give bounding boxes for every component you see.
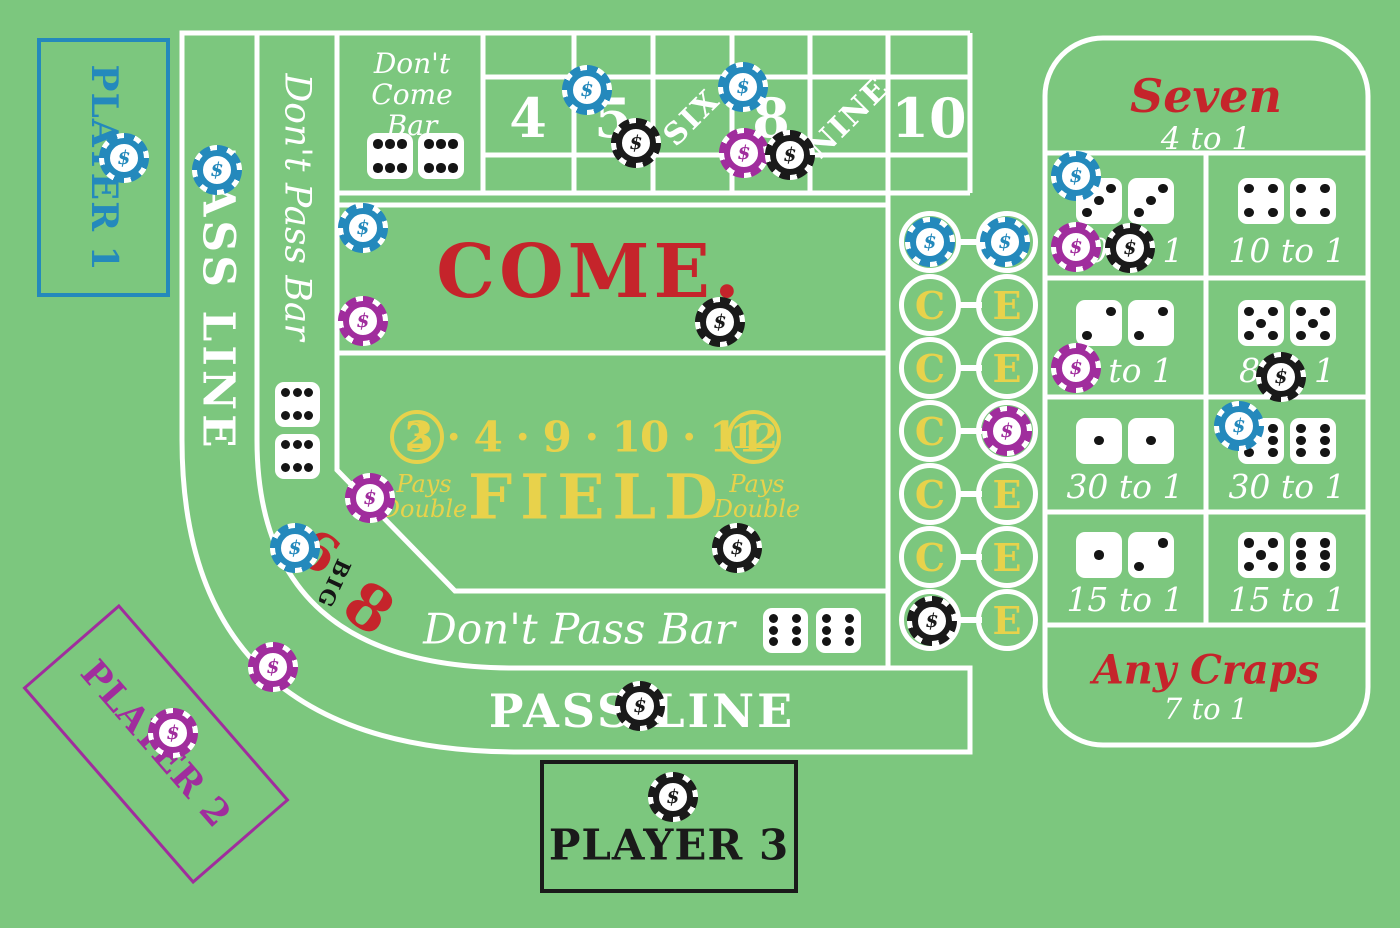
die-pip (1134, 562, 1143, 571)
casino-chip-black[interactable]: $ (611, 118, 661, 168)
die-pip (293, 463, 302, 472)
die-pip (1244, 538, 1253, 547)
die-pip (1134, 331, 1143, 340)
die-pip (1082, 208, 1091, 217)
dollar-symbol: $ (916, 605, 948, 637)
any-craps-circle[interactable]: C (899, 274, 961, 336)
die-pip (1296, 424, 1305, 433)
die-pip (1268, 184, 1277, 193)
die-pip (1158, 307, 1167, 316)
pays-double-right: PaysDouble (714, 472, 800, 522)
any-craps-title[interactable]: Any Craps (1093, 647, 1320, 694)
die-pip (373, 139, 382, 148)
dollar-symbol: $ (914, 226, 946, 258)
die-pip (1320, 184, 1329, 193)
casino-chip-black[interactable]: $ (1105, 223, 1155, 273)
die-pip (1244, 307, 1253, 316)
die-pip (304, 440, 313, 449)
die-pip (1268, 448, 1277, 457)
dollar-symbol: $ (1060, 160, 1092, 192)
die-pip (792, 637, 801, 646)
die-pip (448, 139, 457, 148)
die-pip (1146, 196, 1155, 205)
casino-chip-black[interactable]: $ (1256, 352, 1306, 402)
die-pip (397, 139, 406, 148)
dollar-symbol: $ (1265, 361, 1297, 393)
casino-chip-black[interactable]: $ (765, 130, 815, 180)
die-pip (1296, 331, 1305, 340)
die-pip (1158, 184, 1167, 193)
eleven-circle[interactable]: E (976, 526, 1038, 588)
die-pip (304, 463, 313, 472)
eleven-circle-label: E (993, 598, 1022, 643)
die-pip (1158, 538, 1167, 547)
field-12-label: 12 (730, 417, 777, 457)
die-pip (293, 440, 302, 449)
casino-chip-black[interactable]: $ (615, 681, 665, 731)
eleven-circle[interactable]: E (976, 589, 1038, 651)
die-pip (1146, 436, 1155, 445)
come-area[interactable]: COME. (436, 229, 743, 315)
die-pip (1256, 319, 1265, 328)
seven-bet-odds: 4 to 1 (1161, 121, 1251, 157)
casino-chip-magenta[interactable]: $ (345, 473, 395, 523)
casino-chip-black[interactable]: $ (695, 297, 745, 347)
dollar-symbol: $ (1223, 410, 1255, 442)
die-pip (769, 637, 778, 646)
die-pip (1244, 184, 1253, 193)
casino-chip-black[interactable]: $ (907, 596, 957, 646)
casino-chip-blue[interactable]: $ (905, 217, 955, 267)
printed-die-dont-pass-rail (275, 434, 320, 479)
dollar-symbol: $ (989, 226, 1021, 258)
die-pip (1268, 307, 1277, 316)
die-pip (1106, 307, 1115, 316)
die-pip (1256, 550, 1265, 559)
seven-bet-title[interactable]: Seven (1130, 69, 1282, 123)
die-pip (1268, 436, 1277, 445)
die-pip (1268, 208, 1277, 217)
prop-odds-label[interactable]: 30 to 1 (1207, 467, 1367, 506)
casino-chip-magenta[interactable]: $ (248, 642, 298, 692)
printed-die-prop (1128, 300, 1174, 346)
die-pip (1134, 208, 1143, 217)
dollar-symbol: $ (774, 139, 806, 171)
dont-pass-bar-bottom-label[interactable]: Don't Pass Bar (423, 605, 735, 654)
eleven-circle[interactable]: E (976, 337, 1038, 399)
die-pip (1296, 562, 1305, 571)
casino-chip-blue[interactable]: $ (562, 65, 612, 115)
die-pip (769, 614, 778, 623)
dollar-symbol: $ (347, 212, 379, 244)
any-craps-circle-label: C (915, 409, 945, 454)
casino-chip-black[interactable]: $ (712, 523, 762, 573)
die-pip (304, 411, 313, 420)
die-pip (1320, 208, 1329, 217)
die-pip (1320, 331, 1329, 340)
craps-table: PASS LINE Don't Pass Bar Don't Come Bar … (0, 0, 1400, 928)
eleven-circle[interactable]: E (976, 274, 1038, 336)
printed-die-dont-come-bar (367, 133, 413, 179)
prop-odds-label[interactable]: 30 to 1 (1045, 467, 1205, 506)
printed-die-prop (1238, 178, 1284, 224)
dollar-symbol: $ (620, 127, 652, 159)
die-pip (1094, 196, 1103, 205)
eleven-circle-label: E (993, 535, 1022, 580)
dollar-symbol: $ (657, 781, 689, 813)
dollar-symbol: $ (571, 74, 603, 106)
die-pip (281, 440, 290, 449)
dollar-symbol: $ (354, 482, 386, 514)
field-numbers[interactable]: 3 · 4 · 9 · 10 · 11 (404, 413, 765, 462)
field-area[interactable]: FIELD (468, 461, 726, 534)
die-pip (1320, 538, 1329, 547)
printed-die-prop (1290, 418, 1336, 464)
die-pip (293, 411, 302, 420)
casino-chip-blue[interactable]: $ (980, 217, 1030, 267)
die-pip (1082, 331, 1091, 340)
die-pip (769, 626, 778, 635)
dollar-symbol: $ (157, 717, 189, 749)
printed-die-prop (1290, 178, 1336, 224)
die-pip (1320, 550, 1329, 559)
die-pip (293, 388, 302, 397)
printed-die-dont-pass-rail (275, 382, 320, 427)
any-craps-circle-label: C (915, 283, 945, 328)
die-pip (1296, 448, 1305, 457)
die-pip (1296, 550, 1305, 559)
die-pip (1320, 307, 1329, 316)
die-pip (1308, 319, 1317, 328)
printed-die-prop (1076, 532, 1122, 578)
die-pip (1094, 550, 1103, 559)
casino-chip-blue[interactable]: $ (718, 62, 768, 112)
printed-die-dont-pass-bar-bottom (816, 608, 861, 653)
die-pip (281, 388, 290, 397)
casino-chip-magenta[interactable]: $ (719, 128, 769, 178)
die-pip (385, 163, 394, 172)
eleven-circle[interactable]: E (976, 463, 1038, 525)
die-pip (1094, 436, 1103, 445)
casino-chip-blue[interactable]: $ (99, 133, 149, 183)
dollar-symbol: $ (704, 306, 736, 338)
dollar-symbol: $ (728, 137, 760, 169)
printed-die-prop (1076, 418, 1122, 464)
die-pip (1244, 208, 1253, 217)
eleven-circle-label: E (993, 472, 1022, 517)
die-pip (1244, 331, 1253, 340)
printed-die-prop (1128, 418, 1174, 464)
die-pip (1268, 562, 1277, 571)
any-craps-circle[interactable]: C (899, 463, 961, 525)
casino-chip-blue[interactable]: $ (338, 203, 388, 253)
dollar-symbol: $ (1114, 232, 1146, 264)
printed-die-prop (1128, 532, 1174, 578)
dollar-symbol: $ (727, 71, 759, 103)
die-pip (1296, 208, 1305, 217)
any-craps-circle[interactable]: C (899, 400, 961, 462)
printed-die-prop (1290, 532, 1336, 578)
any-craps-circle-label: C (915, 535, 945, 580)
die-pip (436, 139, 445, 148)
die-pip (1320, 562, 1329, 571)
point-box-4[interactable]: 4 (509, 86, 547, 150)
dollar-symbol: $ (721, 532, 753, 564)
die-pip (1296, 436, 1305, 445)
printed-die-prop (1076, 300, 1122, 346)
dont-pass-rail-label[interactable]: Don't Pass Bar (277, 73, 318, 340)
point-box-10[interactable]: 10 (891, 86, 966, 150)
die-pip (281, 411, 290, 420)
die-pip (792, 626, 801, 635)
printed-die-dont-pass-bar-bottom (763, 608, 808, 653)
dollar-symbol: $ (108, 142, 140, 174)
die-pip (845, 626, 854, 635)
printed-die-prop (1238, 532, 1284, 578)
any-craps-circle-label: C (915, 472, 945, 517)
dollar-symbol: $ (1060, 231, 1092, 263)
die-pip (397, 163, 406, 172)
dollar-symbol: $ (624, 690, 656, 722)
casino-chip-magenta[interactable]: $ (148, 708, 198, 758)
casino-chip-magenta[interactable]: $ (982, 406, 1032, 456)
any-craps-circle[interactable]: C (899, 526, 961, 588)
die-pip (822, 614, 831, 623)
dollar-symbol: $ (991, 415, 1023, 447)
die-pip (373, 163, 382, 172)
prop-odds-label[interactable]: 10 to 1 (1207, 231, 1367, 270)
dollar-symbol: $ (347, 305, 379, 337)
any-craps-circle[interactable]: C (899, 337, 961, 399)
any-craps-circle-label: C (915, 346, 945, 391)
die-pip (424, 163, 433, 172)
die-pip (1106, 184, 1115, 193)
player3-label: PLAYER 3 (549, 821, 789, 870)
dollar-symbol: $ (257, 651, 289, 683)
die-pip (1320, 448, 1329, 457)
eleven-circle-label: E (993, 283, 1022, 328)
casino-chip-magenta[interactable]: $ (1051, 222, 1101, 272)
die-pip (304, 388, 313, 397)
casino-chip-blue[interactable]: $ (1051, 151, 1101, 201)
die-pip (1296, 184, 1305, 193)
die-pip (1296, 307, 1305, 316)
eleven-circle-label: E (993, 346, 1022, 391)
die-pip (822, 626, 831, 635)
die-pip (385, 139, 394, 148)
casino-chip-black[interactable]: $ (648, 772, 698, 822)
dollar-symbol: $ (279, 532, 311, 564)
casino-chip-magenta[interactable]: $ (1051, 343, 1101, 393)
prop-odds-label[interactable]: 15 to 1 (1207, 580, 1367, 619)
die-pip (1244, 562, 1253, 571)
die-pip (1268, 331, 1277, 340)
casino-chip-blue[interactable]: $ (192, 145, 242, 195)
die-pip (424, 139, 433, 148)
die-pip (281, 463, 290, 472)
casino-chip-blue[interactable]: $ (270, 523, 320, 573)
printed-die-prop (1238, 300, 1284, 346)
die-pip (845, 637, 854, 646)
die-pip (845, 614, 854, 623)
field-12-circle[interactable]: 12 (727, 410, 781, 464)
printed-die-dont-come-bar (418, 133, 464, 179)
die-pip (1268, 538, 1277, 547)
dont-come-line1: Don't (371, 49, 452, 80)
die-pip (448, 163, 457, 172)
dont-come-line2: Come (371, 80, 452, 111)
printed-die-prop (1128, 178, 1174, 224)
die-pip (1320, 436, 1329, 445)
die-pip (1320, 424, 1329, 433)
prop-odds-label[interactable]: 15 to 1 (1045, 580, 1205, 619)
die-pip (1296, 538, 1305, 547)
casino-chip-magenta[interactable]: $ (338, 296, 388, 346)
casino-chip-blue[interactable]: $ (1214, 401, 1264, 451)
die-pip (822, 637, 831, 646)
die-pip (792, 614, 801, 623)
dollar-symbol: $ (201, 154, 233, 186)
printed-die-prop (1290, 300, 1336, 346)
die-pip (436, 163, 445, 172)
dollar-symbol: $ (1060, 352, 1092, 384)
any-craps-odds: 7 to 1 (1164, 692, 1248, 726)
dont-come-bar-area[interactable]: Don't Come Bar (371, 49, 452, 141)
die-pip (1268, 424, 1277, 433)
